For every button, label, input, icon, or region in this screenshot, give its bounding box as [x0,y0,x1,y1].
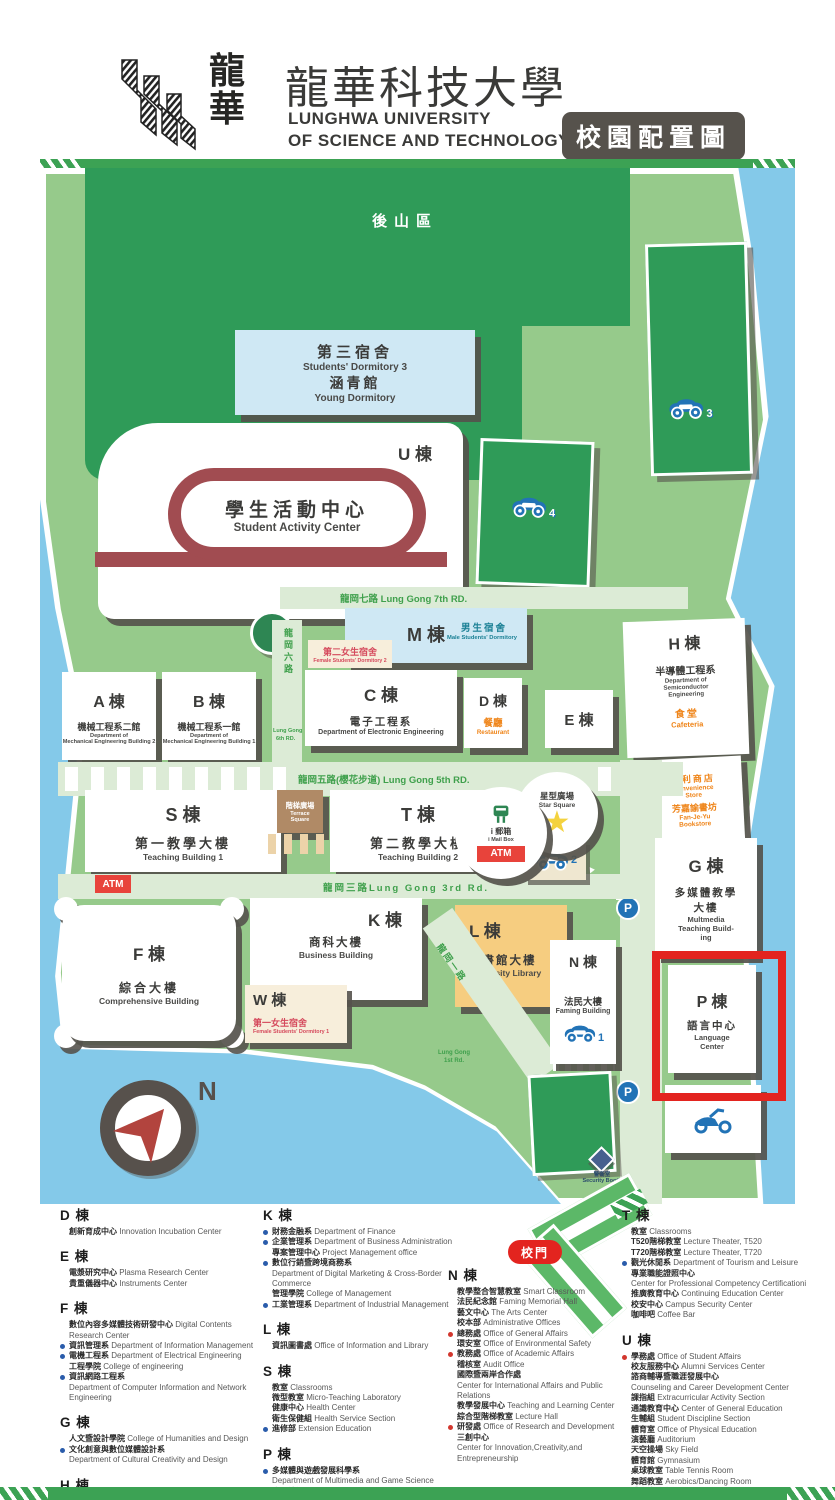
legend-item: Department of Cultural Creativity and De… [60,1455,262,1465]
activity-center-en: Student Activity Center [234,522,361,534]
legend-item: 資訊圖書處 Office of Information and Library [263,1341,455,1351]
mailbox-circle: i 郵箱 i Mail Box ATM [455,787,547,879]
legend-item: 教室 Classrooms [622,1227,830,1237]
school-gate-label: 校門 [508,1240,562,1264]
female-dorm2-zh: 第二女生宿舍 [323,645,377,658]
legend-block: S 棟教室 Classrooms微型教室 Micro-Teaching Labo… [263,1360,455,1435]
bullet-dot [263,1469,268,1474]
building-e: E 棟 [545,690,613,748]
g-en3: ing [700,933,711,942]
legend-item: Center for International Affairs and Pub… [448,1381,623,1402]
legend-item: 數位內容多媒體技術研發中心 Digital Contents Research … [60,1320,262,1341]
legend-item: 創新育成中心 Innovation Incubation Center [60,1227,262,1237]
mailbox-zh: i 郵箱 [491,826,511,837]
atm-sign: ATM [95,875,131,893]
g-en2: Teaching Build- [678,924,734,933]
legend-item: 舞蹈教室 Aerobics/Dancing Room [622,1477,830,1487]
car-icon-3: 3 [666,396,713,421]
bullet-dot [60,1344,65,1349]
h-code: H 棟 [668,629,701,654]
bullet-dot [448,1332,453,1337]
legend-item: Department of Multimedia and Game Scienc… [263,1476,455,1486]
legend-item: 管理學院 College of Management [263,1289,455,1299]
n-en: Faming Building [556,1008,611,1015]
legend-item: 學務處 Office of Student Affairs [622,1352,830,1362]
legend-heading: L 棟 [263,1318,455,1338]
d-zh: 餐廳 [483,715,502,729]
legend-item: 專業職能證照中心 [622,1269,830,1279]
b-zh: 機械工程系一館 [177,720,240,733]
legend-block: N 棟教學整合智慧教室 Smart Classroom法民紀念館 Faming … [448,1264,623,1464]
bullet-dot [263,1427,268,1432]
road-lunggong-6th: 龍岡六路 Lung Gong 6th RD. [272,620,302,770]
b-code: B 棟 [193,688,225,712]
legend-item: 課指組 Extracurricular Activity Section [622,1393,830,1403]
legend-item: 教學整合智慧教室 Smart Classroom [448,1287,623,1297]
bullet-dot [448,1425,453,1430]
road-3-label: 龍岡三路Lung Gong 3rd Rd. [323,880,489,894]
n-zh: 法民大樓 [564,994,602,1008]
car-icon-1: 1 [562,1023,604,1044]
legend-heading: S 棟 [263,1360,455,1380]
dorm3-en2: Young Dormitory [315,393,396,404]
female-dorm2-en: Female Students' Dormitory 2 [313,658,386,664]
legend-item: 觀光休閒系 Department of Tourism and Leisure [622,1258,830,1268]
c-zh: 電子工程系 [350,714,413,729]
legend-item: 健康中心 Health Center [263,1403,455,1413]
n-code: N 棟 [569,952,597,972]
legend-heading: N 棟 [448,1264,623,1284]
k-code: K 棟 [368,906,402,931]
a-zh: 機械工程系二館 [77,720,140,733]
legend-item: 財務金融系 Department of Finance [263,1227,455,1237]
title-en-line2: OF SCIENCE AND TECHNOLOGY [288,130,570,152]
legend-item: 藝文中心 The Arts Center [448,1308,623,1318]
building-n: N 棟 法民大樓 Faming Building 1 [550,940,616,1064]
s-code: S 棟 [165,801,200,827]
terrace-en2: Square [291,817,310,823]
store-en2b: Bookstore [679,820,711,829]
legend-item: 教務處 Office of Academic Affairs [448,1349,623,1359]
legend-item: Counseling and Career Development Center [622,1383,830,1393]
parking-lot-4: 4 [475,438,594,588]
legend-item: Center for Innovation,Creativity,and Ent… [448,1443,623,1464]
s-en: Teaching Building 1 [143,852,223,862]
legend-item: Department of Computer Information and N… [60,1383,262,1404]
legend-item: 文化創意與數位媒體設計系 [60,1445,262,1455]
building-c: C 棟 電子工程系 Department of Electronic Engin… [305,670,457,746]
legend-item: Center for Professional Competency Certi… [622,1279,830,1289]
campus-map-page: 龍 華 龍華科技大學 LUNGHWA UNIVERSITY OF SCIENCE… [0,0,835,1500]
legend-item: 工程學院 College of engineering [60,1362,262,1372]
p-building-highlight [652,951,786,1101]
legend-item: 國際暨兩岸合作處 [448,1370,623,1380]
legend-item: 校友服務中心 Alumni Services Center [622,1362,830,1372]
road-1-label-en1: Lung Gong [438,1050,470,1056]
legend-item: 校安中心 Campus Security Center [622,1300,830,1310]
bullet-dot [263,1230,268,1235]
legend-block: K 棟財務金融系 Department of Finance企業管理系 Depa… [263,1204,455,1310]
building-g: G 棟 多媒體教學 大樓 Multmedia Teaching Build- i… [655,838,757,956]
legend-heading: U 棟 [622,1329,830,1349]
legend-item: 人文暨設計學院 College of Humanities and Design [60,1434,262,1444]
legend-item: 演藝廳 Auditorium [622,1435,830,1445]
bullet-dot [622,1261,627,1266]
legend-item: 咖啡吧 Coffee Bar [622,1310,830,1320]
u-building-code: U 棟 [398,440,432,465]
t-zh: 第二教學大樓 [370,833,466,852]
terrace-zh: 階梯廣場 [286,801,315,811]
legend-heading: P 棟 [263,1443,455,1463]
d-en: Restaurant [477,729,509,736]
h-cafeteria-en: Cafeteria [671,719,703,729]
legend-heading: E 棟 [60,1245,262,1265]
dorm3-en: Students' Dormitory 3 [303,362,407,373]
legend-item: 桌球教室 Table Tennis Room [622,1466,830,1476]
t-en: Teaching Building 2 [378,852,458,862]
mailbox-icon [492,804,510,825]
car-icon-4: 4 [509,494,556,519]
bullet-dot [60,1448,65,1453]
legend-item: 資訊管理系 Department of Information Manageme… [60,1341,262,1351]
legend-item: 天空操場 Sky Field [622,1445,830,1455]
terrace-crosswalk [268,834,330,854]
legend-item: 諮商輔導暨職涯發展中心 [622,1372,830,1382]
university-title-zh: 龍華科技大學 [285,52,567,116]
h-cafeteria-zh: 食堂 [675,705,700,721]
mailbox-en: i Mail Box [488,837,514,843]
title-en-line1: LUNGHWA UNIVERSITY [288,108,570,130]
legend-item: 體育館 Gymnasium [622,1456,830,1466]
bullet-dot [60,1354,65,1359]
parking-2-number: 2 [571,854,577,866]
activity-center-zh: 學生活動中心 [225,495,369,522]
road-1-label-en2: 1st Rd. [444,1058,464,1064]
g-en1: Multmedia [687,915,724,924]
legend-item: 進修部 Extension Education [263,1424,455,1434]
compass-n-label: N [198,1076,217,1107]
road-6-label-en2: 6th RD. [276,736,295,742]
legend-item: 總務處 Office of General Affairs [448,1329,623,1339]
running-track: 學生活動中心 Student Activity Center [168,468,426,560]
legend-col-2: K 棟財務金融系 Department of Finance企業管理系 Depa… [263,1196,455,1500]
legend-item: 多媒體與遊戲發展科學系 [263,1466,455,1476]
legend-item: 電機工程系 Department of Electrical Engineeri… [60,1351,262,1361]
parking-lot-3: 3 [645,242,753,477]
b-en2: Mechanical Engineering Building 1 [163,739,256,745]
compass [100,1080,196,1176]
road-6-label-zh: 龍岡六路 [282,628,295,676]
legend-item: 衛生保健組 Health Service Section [263,1414,455,1424]
road-7-label: 龍岡七路 Lung Gong 7th RD. [340,591,467,605]
legend-item: 生輔組 Student Discipline Section [622,1414,830,1424]
g-zh2: 大樓 [694,900,719,915]
legend-item: T720階梯教室 Lecture Theater, T720 [622,1248,830,1258]
crosswalk-5th-left [65,767,293,791]
h-en3: Engineering [668,690,704,698]
logo-char-2: 華 [206,90,248,128]
d-code: D 棟 [479,691,507,711]
legend-item: Department of Digital Marketing & Cross-… [263,1269,455,1290]
k-zh: 商科大樓 [309,934,363,950]
building-a: A 棟 機械工程系二館 Department of Mechanical Eng… [62,672,156,760]
legend-item: T520階梯教室 Lecture Theater, T520 [622,1237,830,1247]
road-6-label-en1: Lung Gong [273,728,302,734]
star-icon: ★ [544,809,571,837]
legend-item: 推廣教育中心 Continuing Education Center [622,1289,830,1299]
f-en: Comprehensive Building [99,996,199,1006]
g-zh1: 多媒體教學 [675,885,738,900]
campus-map: 後山區 3 4 第三宿舍 Students' Dormitory 3 涵青館 Y… [40,168,795,1204]
legend-block: D 棟創新育成中心 Innovation Incubation Center [60,1204,262,1237]
f-code: F 棟 [133,940,165,965]
male-dorm-en: Male Students' Dormitory [447,635,517,641]
legend-item: 稽核室 Audit Office [448,1360,623,1370]
dorm3-zh: 第三宿舍 [317,341,393,362]
security-zh: 警衛室 [580,1170,624,1178]
c-en: Department of Electronic Engineering [318,729,444,736]
bullet-dot [263,1261,268,1266]
legend-item: 通識教育中心 Center of General Education [622,1404,830,1414]
w-code: W 棟 [253,989,286,1010]
bullet-dot [263,1303,268,1308]
legend-item: 法民紀念館 Faming Memorial Hall [448,1297,623,1307]
g-code: G 棟 [689,852,724,877]
legend-heading: T 棟 [622,1204,830,1224]
building-b: B 棟 機械工程系一館 Department of Mechanical Eng… [162,672,256,760]
t-code: T 棟 [401,801,435,827]
university-title-en: LUNGHWA UNIVERSITY OF SCIENCE AND TECHNO… [288,108,570,152]
legend-heading: F 棟 [60,1297,262,1317]
legend-block: U 棟學務處 Office of Student Affairs校友服務中心 A… [622,1329,830,1500]
c-code: C 棟 [364,681,398,706]
building-h: H 棟 半導體工程系 Department of Semiconductor E… [623,618,750,758]
parking-sign-2: P [616,1080,640,1104]
legend-item: 研發處 Office of Research and Development [448,1422,623,1432]
bottom-bar-hatch-right [787,1487,835,1500]
bottom-divider-bar [0,1487,835,1500]
legend-item: 綜合型階梯教室 Lecture Hall [448,1412,623,1422]
legend-item: 專案管理中心 Project Management office [263,1248,455,1258]
a-en2: Mechanical Engineering Building 2 [63,739,156,745]
legend-item: 教學發展中心 Teaching and Learning Center [448,1401,623,1411]
legend-item: 教室 Classrooms [263,1383,455,1393]
e-code: E 棟 [564,709,593,730]
legend-heading: K 棟 [263,1204,455,1224]
legend-item: 貴重儀器中心 Instruments Center [60,1279,262,1289]
legend-col-4: T 棟教室 ClassroomsT520階梯教室 Lecture Theater… [622,1196,830,1500]
bullet-dot [622,1355,627,1360]
dorm3-zh2: 涵青館 [330,373,381,393]
legend-block: F 棟數位內容多媒體技術研發中心 Digital Contents Resear… [60,1297,262,1403]
building-s: S 棟 第一教學大樓 Teaching Building 1 [85,790,281,872]
parking-1-number: 1 [598,1032,604,1044]
legend-item: 工業管理系 Department of Industrial Managemen… [263,1300,455,1310]
university-logo-icon [118,58,204,152]
parking-3-number: 3 [706,407,712,419]
legend-item: 企業管理系 Department of Business Administrat… [263,1237,455,1247]
legend-item: 電漿研究中心 Plasma Research Center [60,1268,262,1278]
map-title-badge: 校園配置圖 [562,112,745,160]
m-building-code: M 棟 [407,621,445,647]
bottom-bar-hatch-left [0,1487,48,1500]
k-en: Business Building [299,950,373,960]
logo-calligraphy: 龍 華 [206,52,248,128]
s-zh: 第一教學大樓 [135,833,231,852]
female-dorm2-label: 第二女生宿舍 Female Students' Dormitory 2 [308,640,392,668]
legend-col-3: N 棟教學整合智慧教室 Smart Classroom法民紀念館 Faming … [448,1256,623,1464]
mailbox-atm-badge: ATM [477,846,525,862]
building-d: D 棟 餐廳 Restaurant [464,678,522,748]
legend-item: 資訊網路工程系 [60,1372,262,1382]
legend-item: 環安室 Office of Environmental Safety [448,1339,623,1349]
legend-block: E 棟電漿研究中心 Plasma Research Center貴重儀器中心 I… [60,1245,262,1289]
legend-col-1: D 棟創新育成中心 Innovation Incubation CenterE … [60,1196,262,1500]
building-f: F 棟 綜合大樓 Comprehensive Building [62,905,236,1041]
building-w: W 棟 第一女生宿舍 Female Students' Dormitory 1 [245,985,347,1043]
legend-block: L 棟資訊圖書處 Office of Information and Libra… [263,1318,455,1351]
legend-heading: D 棟 [60,1204,262,1224]
compass-needle-icon [113,1093,183,1163]
legend-item: 體育室 Office of Physical Education [622,1425,830,1435]
legend-item: 微型教室 Micro-Teaching Laboratory [263,1393,455,1403]
parking-4-number: 4 [549,507,556,519]
legend-item: 數位行銷暨跨境商務系 [263,1258,455,1268]
legend-item: 三創中心 [448,1433,623,1443]
w-zh: 第一女生宿舍 [253,1016,307,1029]
a-code: A 棟 [93,688,124,712]
store-en1b: Store [685,792,702,800]
bullet-dot [448,1352,453,1357]
legend-block: G 棟人文暨設計學院 College of Humanities and Des… [60,1411,262,1465]
w-en: Female Students' Dormitory 1 [253,1029,329,1035]
bullet-dot [60,1375,65,1380]
bullet-dot [263,1240,268,1245]
building-dormitory-3: 第三宿舍 Students' Dormitory 3 涵青館 Young Dor… [235,330,475,415]
f-zh: 綜合大樓 [119,979,179,996]
legend-item: 校本部 Administrative Offices [448,1318,623,1328]
logo-char-1: 龍 [206,52,248,90]
star-zh: 星型廣場 [540,790,574,802]
terrace-square: 階梯廣場 Terrace Square [277,790,323,833]
legend-heading: G 棟 [60,1411,262,1431]
road-5-label: 龍岡五路(櫻花步道) Lung Gong 5th RD. [298,772,470,786]
legend-block: T 棟教室 ClassroomsT520階梯教室 Lecture Theater… [622,1204,830,1321]
back-mountain-label: 後山區 [295,210,515,231]
male-dorm-zh: 男生宿舍 [461,620,507,634]
scooter-icon [690,1104,736,1134]
